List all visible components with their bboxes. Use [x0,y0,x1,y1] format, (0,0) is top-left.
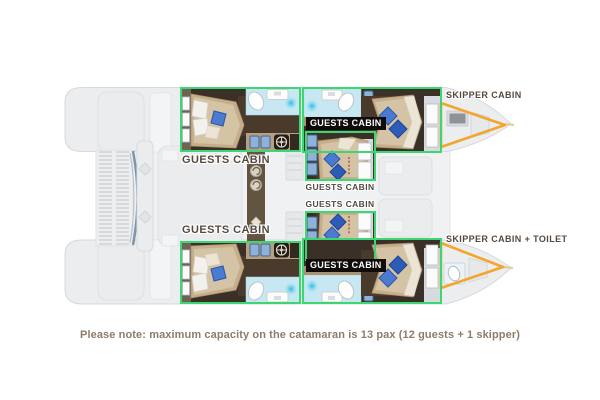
stairs-icon [286,149,303,180]
cabinet-icon [261,136,270,148]
cabin-label-guests-cabin-mid-bot: GUESTS CABIN [303,200,377,209]
helm-wheel-icon [274,135,289,150]
window-icon [183,250,190,263]
bathroom [304,275,361,303]
cabinet-icon [261,244,270,256]
drawer-icon [307,217,317,229]
cabinet-icon [250,136,259,148]
door-icon [358,162,371,179]
window-icon [450,114,466,124]
cabin-top-aft [181,88,300,151]
drawer-icon [307,149,317,161]
window-icon [183,129,190,142]
pillow-icon [211,266,226,281]
door-icon [426,245,438,265]
capacity-note: Please note: maximum capacity on the cat… [0,329,600,341]
window-icon [183,97,190,110]
door-icon [426,127,438,147]
door-icon [426,268,438,288]
center-beam [137,141,153,251]
cabin-mid-top [306,132,375,180]
pillow-icon [211,111,226,126]
cabin-label-guests-cabin-top-fwd: GUESTS CABIN [306,117,386,130]
door-icon [426,104,438,124]
pillow-icon [192,273,208,292]
bathroom [304,89,361,117]
bathroom [245,277,300,304]
bathroom [245,88,300,115]
cabin-label-guests-cabin-bot-aft: GUESTS CABIN [176,225,276,236]
stairs-icon [286,212,303,243]
trampoline-icon [96,150,138,246]
drawer-icon [307,163,317,175]
cabin-label-guests-cabin-mid-top: GUESTS CABIN [303,183,377,192]
shower-glow-icon [284,96,299,111]
helm-wheel-icon [274,243,289,258]
bow-tip [503,267,513,268]
bed-icon [191,94,244,148]
door-icon [358,213,371,230]
window-icon [183,113,190,126]
window-icon [183,266,190,279]
bed-icon [191,244,244,298]
window-icon [183,282,190,295]
cabin-bottom-aft [181,241,300,304]
cabin-label-skipper-cabin-bottom: SKIPPER CABIN + TOILET [446,235,567,244]
cabinet-icon [250,244,259,256]
shower-glow-icon [284,282,299,297]
cabin-label-guests-cabin-bot-fwd: GUESTS CABIN [306,259,386,272]
bow-tip [505,124,514,125]
cabin-label-guests-cabin-top-aft: GUESTS CABIN [176,155,276,166]
shower-glow-icon [305,99,320,114]
drawer-icon [307,135,317,147]
catamaran-floorplan: SKIPPER CABINGUESTS CABINGUESTS CABINGUE… [0,0,600,400]
pillow-icon [192,100,208,119]
shower-glow-icon [305,279,320,294]
cabin-label-skipper-cabin-top: SKIPPER CABIN [446,91,522,100]
